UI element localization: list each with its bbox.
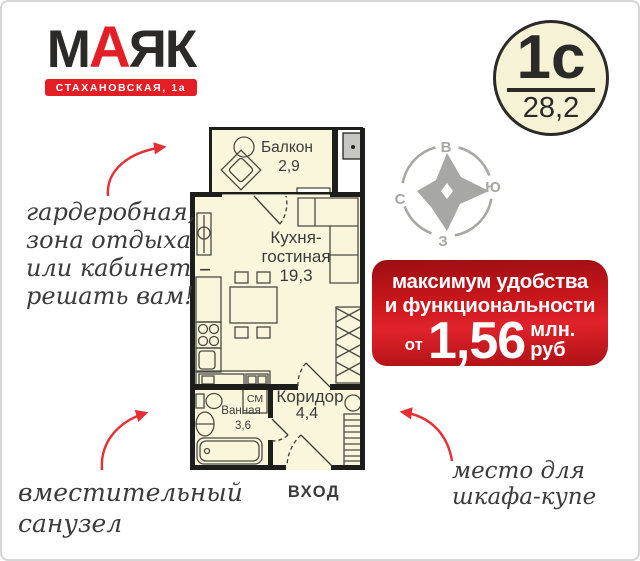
note-wardrobe-zone: гардеробная, зона отдыха или кабинет – р… (26, 198, 211, 310)
note-bathroom-line2: санузел (18, 508, 243, 539)
compass-north: С (395, 191, 406, 208)
price-unit-rub: руб (530, 340, 565, 360)
price-row: от 1,56 млн. руб (372, 320, 608, 361)
price-banner: максимум удобства и функциональности от … (372, 260, 608, 366)
compass-star (417, 153, 489, 231)
price-units: млн. руб (530, 320, 575, 360)
banner-line1: максимум удобства (372, 270, 608, 294)
compass-east: В (441, 139, 452, 156)
label-kitchen-1: Кухня- (270, 228, 321, 247)
arrow-to-closet (402, 412, 452, 461)
label-balcony: Балкон (261, 139, 313, 156)
note-wardrobe-line3: или кабинет – (26, 254, 211, 282)
price-unit-mln: млн. (530, 320, 575, 340)
label-washer: СМ (247, 393, 263, 405)
note-closet-line2: шкафа-купе (452, 484, 596, 510)
label-bathroom-area: 3,6 (235, 420, 251, 432)
note-bathroom-line1: вместительный (18, 477, 243, 508)
price-value: 1,56 (428, 321, 525, 361)
note-wardrobe-line4: решать вам! (26, 282, 211, 310)
label-corridor: Коридор (276, 387, 343, 406)
note-wardrobe-line1: гардеробная, (26, 198, 211, 226)
note-wardrobe-line2: зона отдыха (26, 226, 211, 254)
note-bathroom: вместительный санузел (18, 477, 243, 539)
compass-rose: В Ю З С (395, 139, 501, 250)
label-kitchen-2: гостиная (261, 247, 330, 266)
note-closet-line1: место для (452, 458, 596, 484)
price-from: от (405, 335, 423, 355)
compass-west: З (438, 233, 447, 250)
arrow-to-bathroom (102, 413, 146, 470)
label-kitchen-area: 19,3 (279, 266, 312, 285)
label-corridor-area: 4,4 (296, 405, 318, 422)
label-bathroom: Ванная (221, 405, 260, 417)
compass-south: Ю (485, 179, 500, 196)
note-closet: место для шкафа-купе (452, 458, 596, 510)
label-balcony-area: 2,9 (278, 158, 300, 175)
arrow-to-balcony (108, 147, 164, 196)
label-entrance: ВХОД (288, 483, 340, 501)
